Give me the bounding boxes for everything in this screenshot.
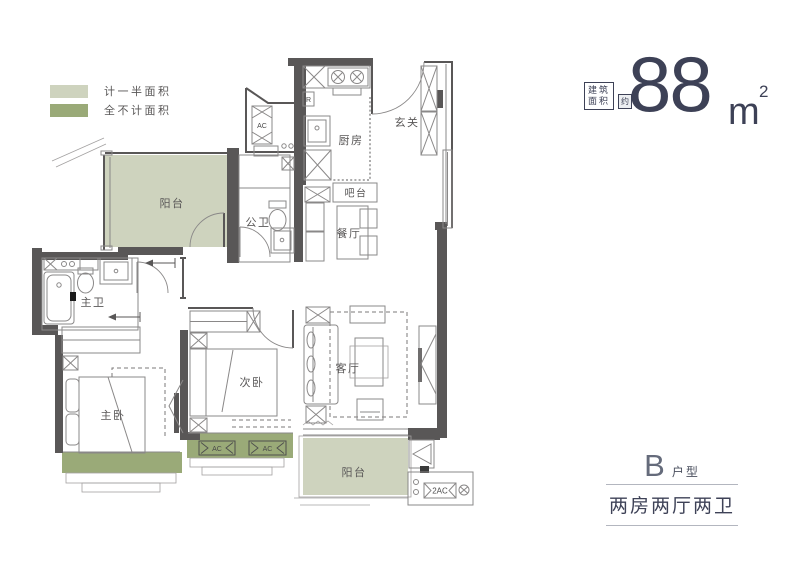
excluded-area-label: 全不计面积 [104, 102, 172, 118]
legend-item-excluded-area: 全不计面积 [50, 103, 172, 117]
room-label-dining: 餐厅 [337, 226, 362, 240]
building-area-line1: 建筑 [588, 85, 610, 96]
area-unit-sup: 2 [759, 82, 768, 102]
unit-type-row: B 户型 [606, 450, 738, 485]
room-label-guest-bath: 公卫 [246, 217, 271, 229]
second-bedroom-furniture [190, 311, 291, 432]
half-area-swatch [50, 85, 88, 98]
room-label-balcony-bottom: 阳台 [342, 465, 367, 479]
tv-cabinet [418, 326, 436, 404]
entry-cabinets [421, 66, 437, 155]
area-unit: m [728, 93, 760, 131]
room-label-bar: 吧台 [345, 187, 368, 200]
svg-text:AC: AC [257, 123, 267, 130]
master-bath-fixtures [44, 258, 132, 324]
area-badge: 建筑 面积 约 88 m 2 [582, 46, 772, 124]
master-bedroom-furniture [62, 327, 165, 453]
room-label-second-bedroom: 次卧 [240, 375, 265, 389]
area-value: 88 [628, 45, 711, 123]
building-area-label: 建筑 面积 [584, 82, 614, 110]
room-label-master-bedroom: 主卧 [101, 409, 126, 422]
kitchen-sink [304, 116, 330, 146]
bathtub [44, 272, 76, 324]
toilet [78, 268, 94, 293]
svg-text:AC: AC [212, 446, 222, 453]
building-area-line2: 面积 [588, 96, 610, 107]
room-label-balcony-top: 阳台 [160, 196, 185, 210]
sofa [304, 325, 338, 404]
vanity-sink [100, 258, 132, 284]
laundry-area: 2AC [408, 440, 473, 505]
legend-item-half-area: 计一半面积 [50, 84, 172, 98]
floorplan-page: 计一半面积 全不计面积 建筑 面积 约 88 m 2 B 户型 两房两厅两卫 [0, 0, 800, 565]
room-label-living: 客厅 [336, 361, 361, 375]
legend: 计一半面积 全不计面积 [50, 84, 172, 122]
excluded-area-swatch [50, 104, 88, 117]
unit-info: B 户型 两房两厅两卫 [606, 450, 738, 526]
room-label-kitchen: 厨房 [339, 134, 364, 147]
svg-text:AC: AC [263, 446, 273, 453]
living-room-furniture [304, 306, 436, 423]
slide-arrows [108, 258, 175, 322]
svg-text:2AC: 2AC [432, 487, 448, 496]
ac-niche: AC [252, 106, 294, 170]
unit-type-letter: B [644, 450, 665, 481]
room-label-master-bath: 主卫 [81, 296, 106, 309]
unit-type-label: 户型 [672, 463, 700, 480]
unit-layout-label: 两房两厅两卫 [606, 485, 738, 526]
room-label-entry: 玄关 [395, 115, 420, 129]
svg-text:R: R [306, 97, 311, 104]
ac-double-unit: 2AC [408, 472, 473, 505]
half-area-label: 计一半面积 [104, 83, 172, 99]
